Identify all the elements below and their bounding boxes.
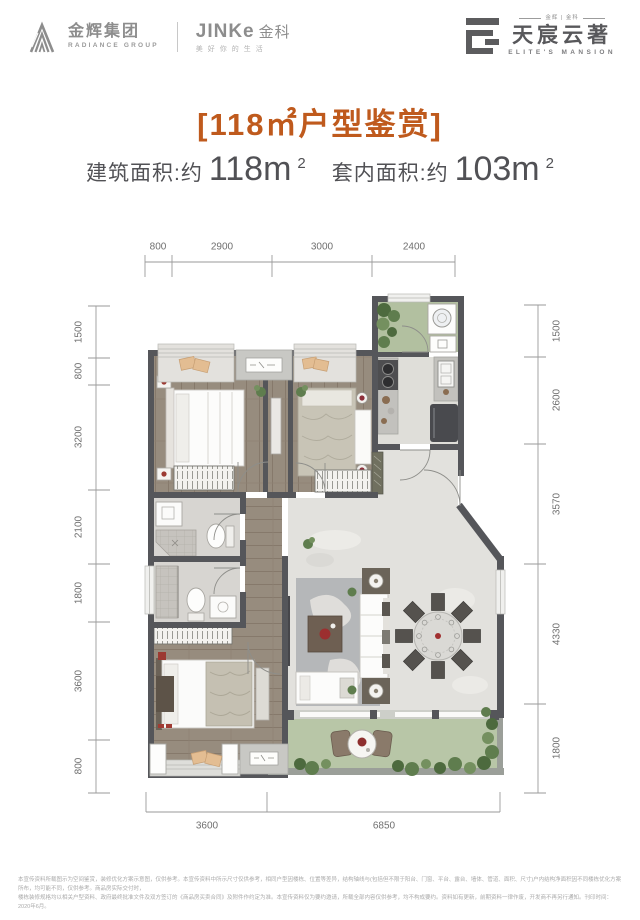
vanity-desk xyxy=(156,676,174,712)
bed-headboard xyxy=(166,388,174,468)
desk-icon xyxy=(271,398,281,454)
wardrobe xyxy=(174,466,234,490)
toilet-icon xyxy=(207,524,225,548)
entry-cabinet xyxy=(372,452,383,494)
cabinet xyxy=(430,336,456,352)
balcony-furniture xyxy=(330,730,392,758)
floor-plan-graphic xyxy=(0,0,640,920)
between-bedrooms-nook xyxy=(271,398,281,454)
shower-icon xyxy=(156,566,178,618)
toilet-icon xyxy=(187,588,205,612)
dining-furniture xyxy=(396,594,481,679)
poster-page: 金辉集团 RADIANCE GROUP JINKe 金科 美好你的生活 金辉 |… xyxy=(0,0,640,920)
bed-bench xyxy=(256,668,269,720)
legal-disclaimer: 本宣传资料所载图示为空间鉴赏，装修优化方案示意图，仅供参考。本宣传资料中所示尺寸… xyxy=(18,876,624,912)
bedroom1-furniture xyxy=(157,376,244,490)
sink-icon xyxy=(210,596,236,618)
sink-icon xyxy=(438,361,454,387)
bed-bench xyxy=(355,410,371,464)
wardrobe xyxy=(154,626,232,644)
living-room-furniture xyxy=(284,568,390,706)
service-balcony-fixtures xyxy=(428,304,456,352)
disclaimer-line2: 楼栋装修规格均以相关户型资料、政府最终批准文件及双方签订的《商品房买卖合同》及附… xyxy=(18,894,624,912)
sink-icon xyxy=(156,502,182,526)
disclaimer-line1: 本宣传资料所载图示为空间鉴赏，装修优化方案示意图，仅供参考。本宣传资料中所示尺寸… xyxy=(18,876,624,894)
